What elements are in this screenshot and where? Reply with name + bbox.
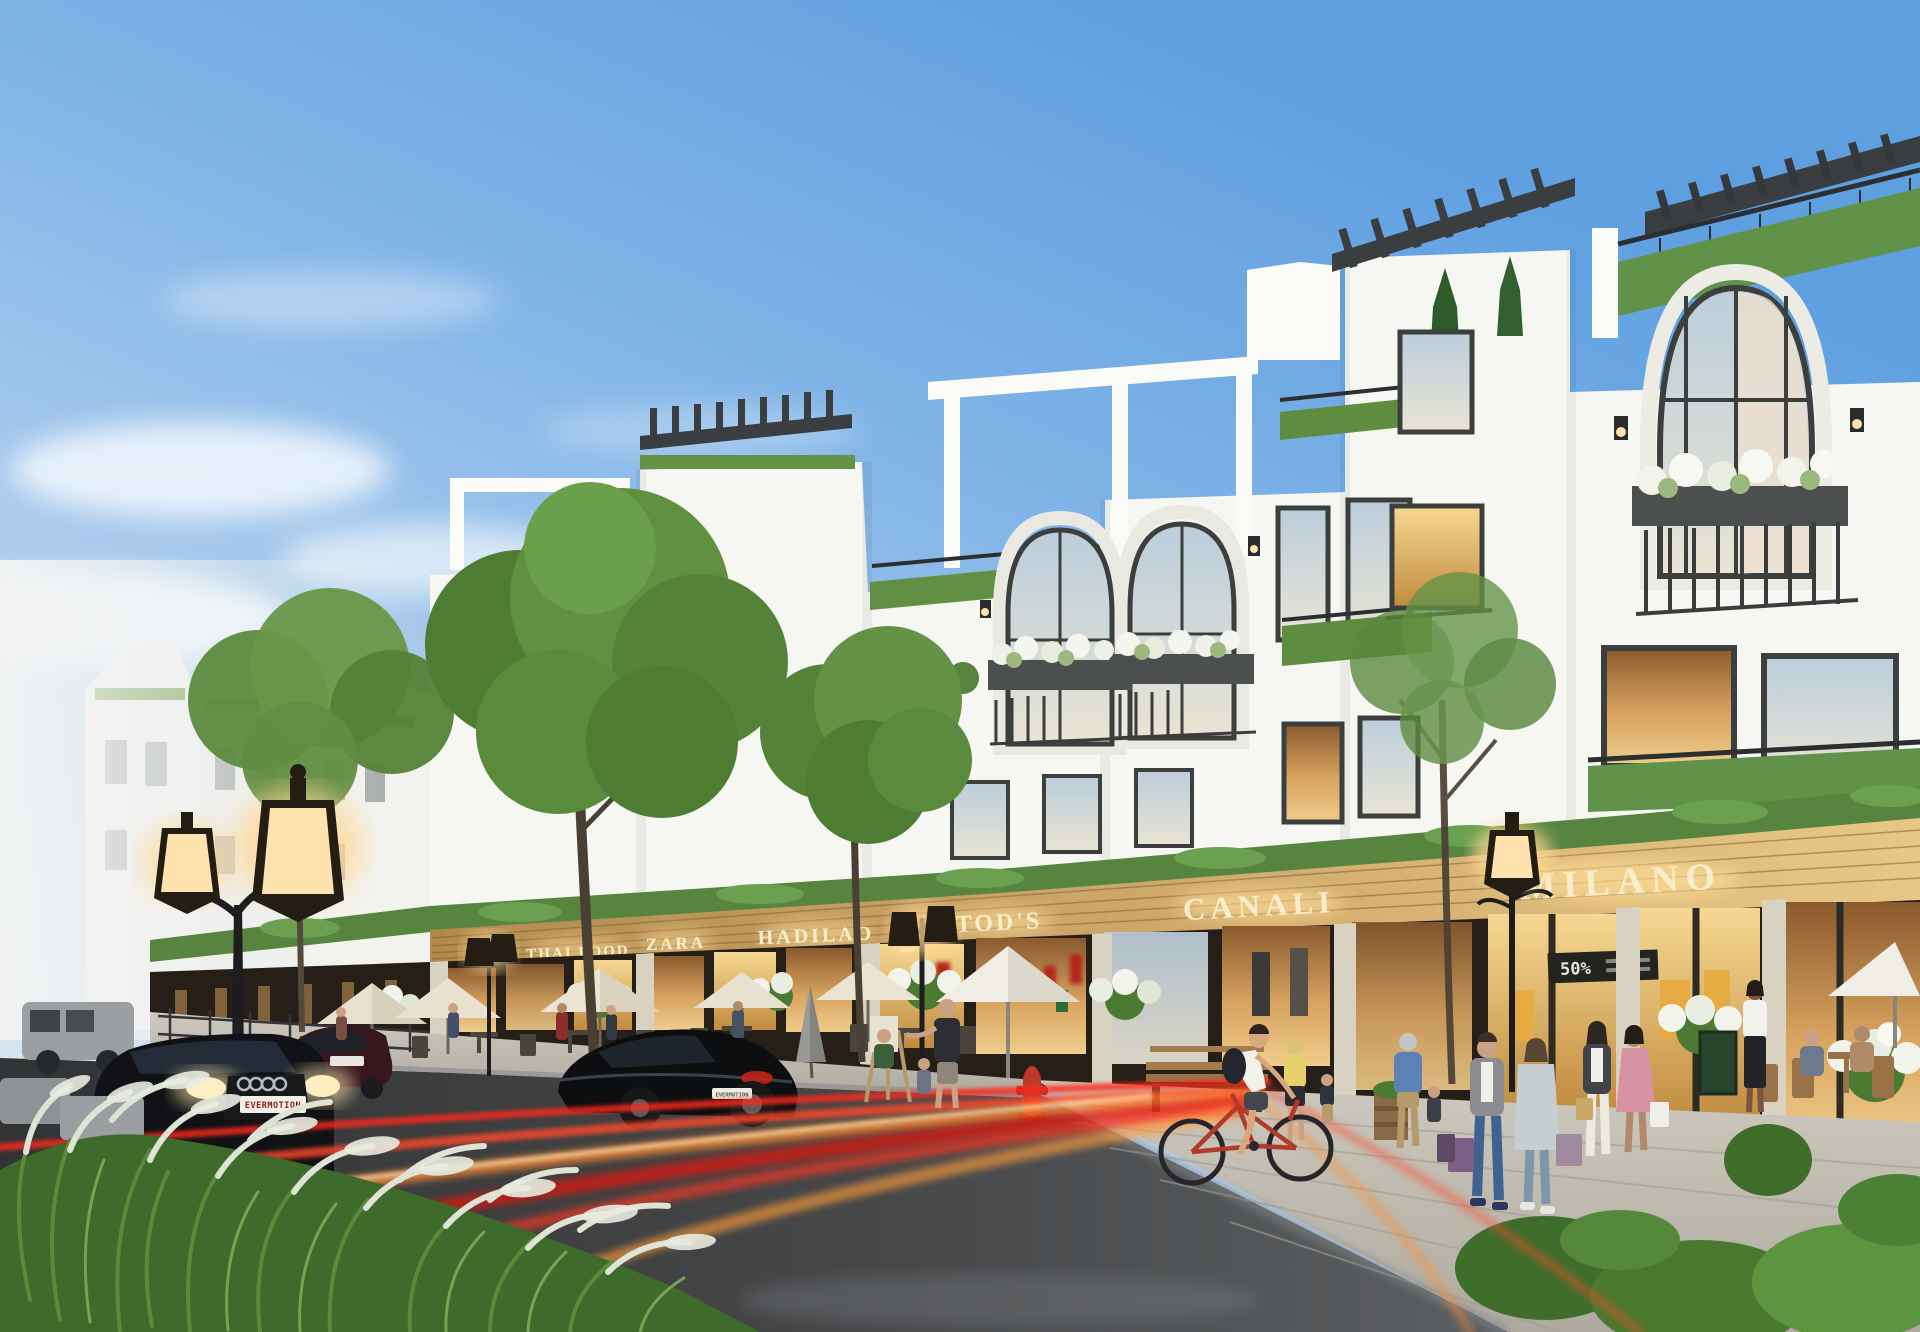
wall-sconce [1248,536,1260,556]
license-plate-rear-small [330,1056,364,1066]
wall-sconce [1614,416,1628,440]
roof-hedge [640,455,855,469]
sign-tods: TOD'S [955,908,1043,938]
child-khaki [1320,1074,1334,1122]
mannequin [1252,952,1270,1016]
handbag [1576,1098,1593,1120]
road-sheen [740,1274,1260,1326]
menu-board [1700,1032,1736,1094]
architectural-render-scene: THAI FOOD ZARA HADILAO TOD'S CANALI MILA… [0,0,1920,1332]
child [917,1070,931,1094]
rider-shorts [1244,1092,1268,1110]
bay3-second-floor-windows [952,770,1192,858]
crankset [1249,1141,1259,1151]
shopping-bag [1437,1134,1455,1162]
scene-canvas: THAI FOOD ZARA HADILAO TOD'S CANALI MILA… [0,0,1920,1332]
flower-box [1110,654,1254,684]
shopping-bag [1650,1102,1669,1127]
parapet-post [1592,228,1618,338]
sale-sign-text: 50% [1560,959,1592,980]
parapet-corner [1247,262,1340,360]
shopping-bag [1556,1134,1582,1166]
license-plate-rear-text: EVERMOTION [715,1093,748,1099]
seated-painter [874,1044,894,1068]
sale-sign: 50% [1548,949,1659,983]
wall-sconce [1850,408,1864,432]
wall-sconce [980,600,991,618]
rider-backpack [1222,1048,1246,1084]
standing-man [934,1018,960,1062]
mannequin [1290,948,1308,1016]
